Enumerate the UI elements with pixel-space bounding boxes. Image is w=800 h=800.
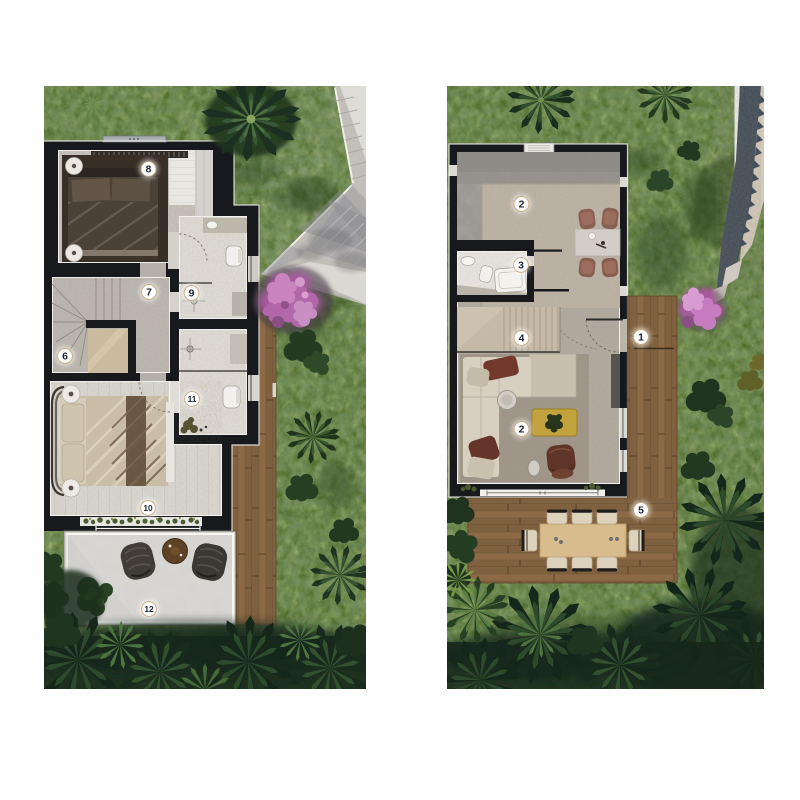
svg-text:7: 7 xyxy=(146,288,152,299)
svg-text:3: 3 xyxy=(518,261,524,272)
svg-text:1: 1 xyxy=(638,333,644,344)
svg-text:5: 5 xyxy=(638,506,644,517)
svg-text:12: 12 xyxy=(144,604,154,614)
svg-text:2: 2 xyxy=(519,200,525,211)
svg-text:8: 8 xyxy=(146,165,152,176)
svg-text:10: 10 xyxy=(143,503,153,513)
svg-text:2: 2 xyxy=(519,425,525,436)
svg-text:4: 4 xyxy=(519,334,525,345)
svg-text:6: 6 xyxy=(62,352,68,363)
svg-text:9: 9 xyxy=(189,289,195,300)
svg-text:11: 11 xyxy=(188,394,197,404)
